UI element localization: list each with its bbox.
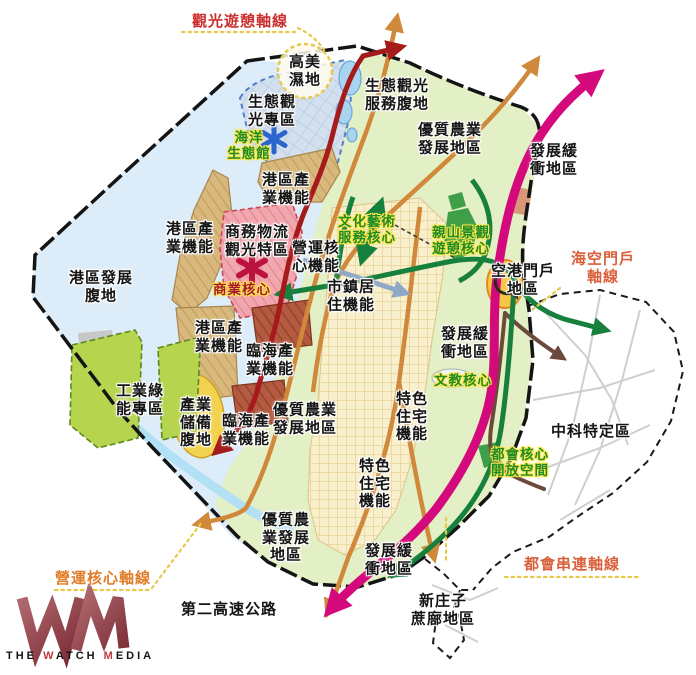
gaomei-wetland-circle [278,44,332,98]
brand-part: M [104,650,116,662]
planning-map: 觀光遊憩軸線海空門戶 軸線營運核心軸線都會串連軸線高美 濕地生態觀 光專區海洋 … [0,0,696,675]
brand-part: ATCH [56,650,104,662]
stadium-oval [432,369,472,387]
brand-text: THE WATCH MEDIA [6,650,166,662]
brand-part: EDIA [116,650,154,662]
brand-part: THE [6,650,43,662]
watch-media-logo [22,598,124,650]
map-canvas [0,0,696,675]
brand-part: W [43,650,56,662]
